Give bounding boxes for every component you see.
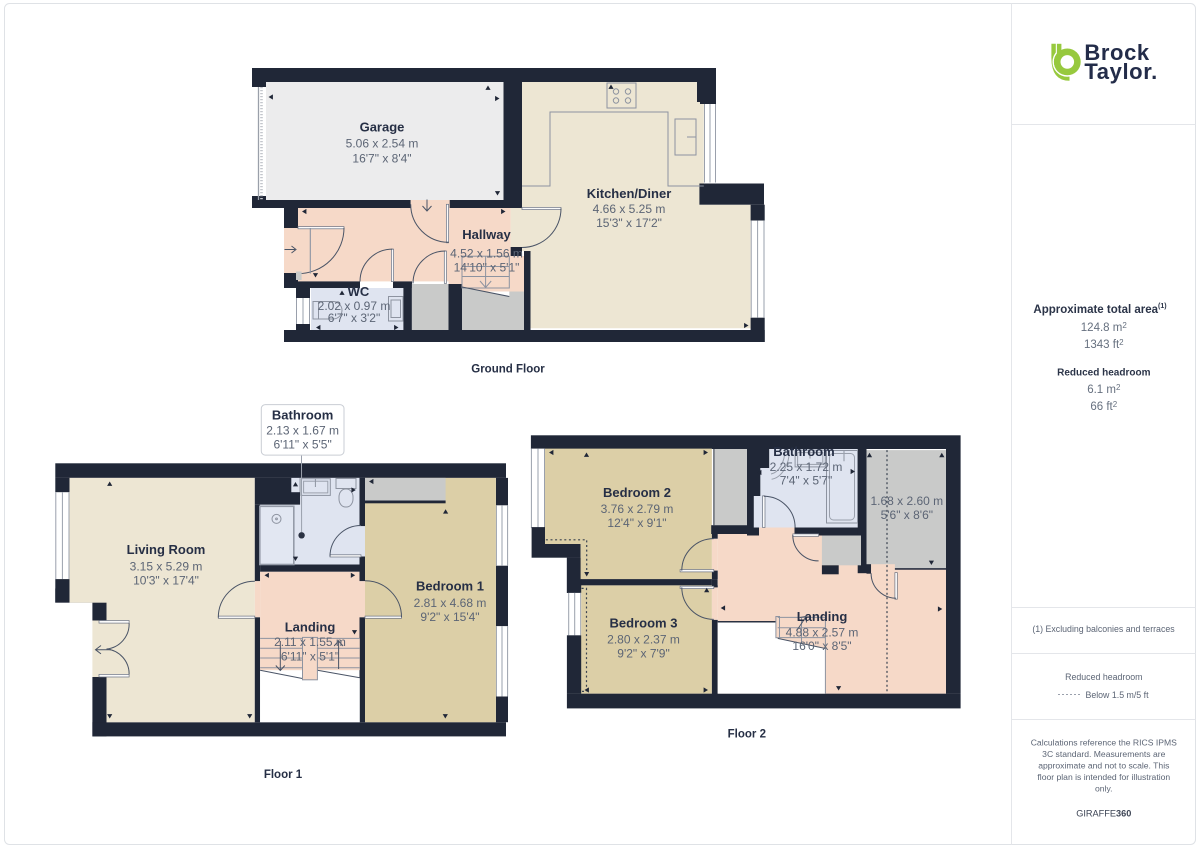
svg-text:Reduced headroom: Reduced headroom: [1057, 368, 1150, 379]
svg-text:Garage: Garage: [360, 120, 405, 135]
svg-text:9'2" x 7'9": 9'2" x 7'9": [617, 647, 669, 661]
svg-text:WC: WC: [348, 284, 370, 299]
svg-text:Bedroom 3: Bedroom 3: [610, 616, 678, 631]
svg-text:4.52 x 1.56 m: 4.52 x 1.56 m: [450, 247, 523, 261]
svg-text:14'10" x 5'1": 14'10" x 5'1": [454, 261, 520, 275]
svg-text:1.68 x 2.60 m: 1.68 x 2.60 m: [870, 494, 943, 508]
svg-text:6'11" x 5'5": 6'11" x 5'5": [273, 438, 331, 452]
svg-text:3C standard. Measurements are: 3C standard. Measurements are: [1042, 749, 1165, 759]
svg-text:16'7" x 8'4": 16'7" x 8'4": [352, 152, 411, 166]
svg-text:12'4" x 9'1": 12'4" x 9'1": [607, 516, 666, 530]
svg-text:Floor 1: Floor 1: [264, 769, 303, 781]
svg-text:Kitchen/Diner: Kitchen/Diner: [587, 186, 672, 201]
svg-text:10'3" x 17'4": 10'3" x 17'4": [133, 574, 199, 588]
svg-text:6'11" x 5'1": 6'11" x 5'1": [281, 650, 339, 664]
svg-text:Landing: Landing: [285, 620, 336, 635]
svg-text:Bathroom: Bathroom: [773, 444, 834, 459]
svg-text:124.8 m2: 124.8 m2: [1081, 321, 1128, 334]
svg-text:(1) Excluding balconies and te: (1) Excluding balconies and terraces: [1032, 624, 1175, 634]
svg-text:3.15 x 5.29 m: 3.15 x 5.29 m: [130, 560, 203, 574]
svg-text:7'4" x 5'7": 7'4" x 5'7": [780, 474, 832, 488]
svg-text:approximate and not to scale.: approximate and not to scale. This: [1038, 761, 1169, 771]
svg-text:Hallway: Hallway: [462, 227, 511, 242]
svg-text:floor plan is intended for ill: floor plan is intended for illustration: [1037, 772, 1170, 782]
svg-text:Bedroom 1: Bedroom 1: [416, 579, 484, 594]
svg-text:2.25 x 1.72 m: 2.25 x 1.72 m: [770, 460, 843, 474]
svg-text:2.13 x 1.67 m: 2.13 x 1.67 m: [266, 424, 339, 438]
svg-text:Landing: Landing: [797, 609, 848, 624]
svg-text:Reduced headroom: Reduced headroom: [1065, 672, 1142, 682]
svg-text:Ground Floor: Ground Floor: [471, 364, 545, 376]
svg-text:Bedroom 2: Bedroom 2: [603, 485, 671, 500]
svg-text:Calculations reference the RIC: Calculations reference the RICS IPMS: [1031, 738, 1177, 748]
svg-text:2.11 x 1.55 m: 2.11 x 1.55 m: [274, 635, 346, 649]
svg-text:5.06 x 2.54 m: 5.06 x 2.54 m: [346, 137, 419, 151]
svg-text:6.1 m2: 6.1 m2: [1087, 383, 1121, 396]
svg-text:15'3" x 17'2": 15'3" x 17'2": [596, 216, 662, 230]
svg-text:Approximate total area(1): Approximate total area(1): [1033, 303, 1166, 316]
svg-text:GIRAFFE360: GIRAFFE360: [1076, 809, 1131, 819]
svg-text:Living Room: Living Room: [127, 542, 206, 557]
svg-text:Below 1.5 m/5 ft: Below 1.5 m/5 ft: [1085, 690, 1149, 700]
svg-text:1343 ft2: 1343 ft2: [1084, 338, 1124, 351]
svg-text:Floor 2: Floor 2: [728, 729, 766, 741]
svg-text:2.81 x 4.68 m: 2.81 x 4.68 m: [414, 596, 487, 610]
svg-text:6'7" x 3'2": 6'7" x 3'2": [328, 311, 380, 325]
svg-text:5'6" x 8'6": 5'6" x 8'6": [881, 508, 933, 522]
svg-text:Bathroom: Bathroom: [272, 408, 333, 423]
svg-text:4.88 x 2.57 m: 4.88 x 2.57 m: [786, 626, 859, 640]
svg-text:16'0" x 8'5": 16'0" x 8'5": [792, 639, 851, 653]
svg-text:9'2" x 15'4": 9'2" x 15'4": [420, 610, 479, 624]
svg-text:4.66 x 5.25 m: 4.66 x 5.25 m: [593, 202, 666, 216]
svg-text:3.76 x 2.79 m: 3.76 x 2.79 m: [601, 502, 674, 516]
svg-text:Taylor.: Taylor.: [1084, 59, 1158, 84]
svg-text:2.80 x 2.37 m: 2.80 x 2.37 m: [607, 633, 680, 647]
svg-text:only.: only.: [1095, 784, 1113, 794]
